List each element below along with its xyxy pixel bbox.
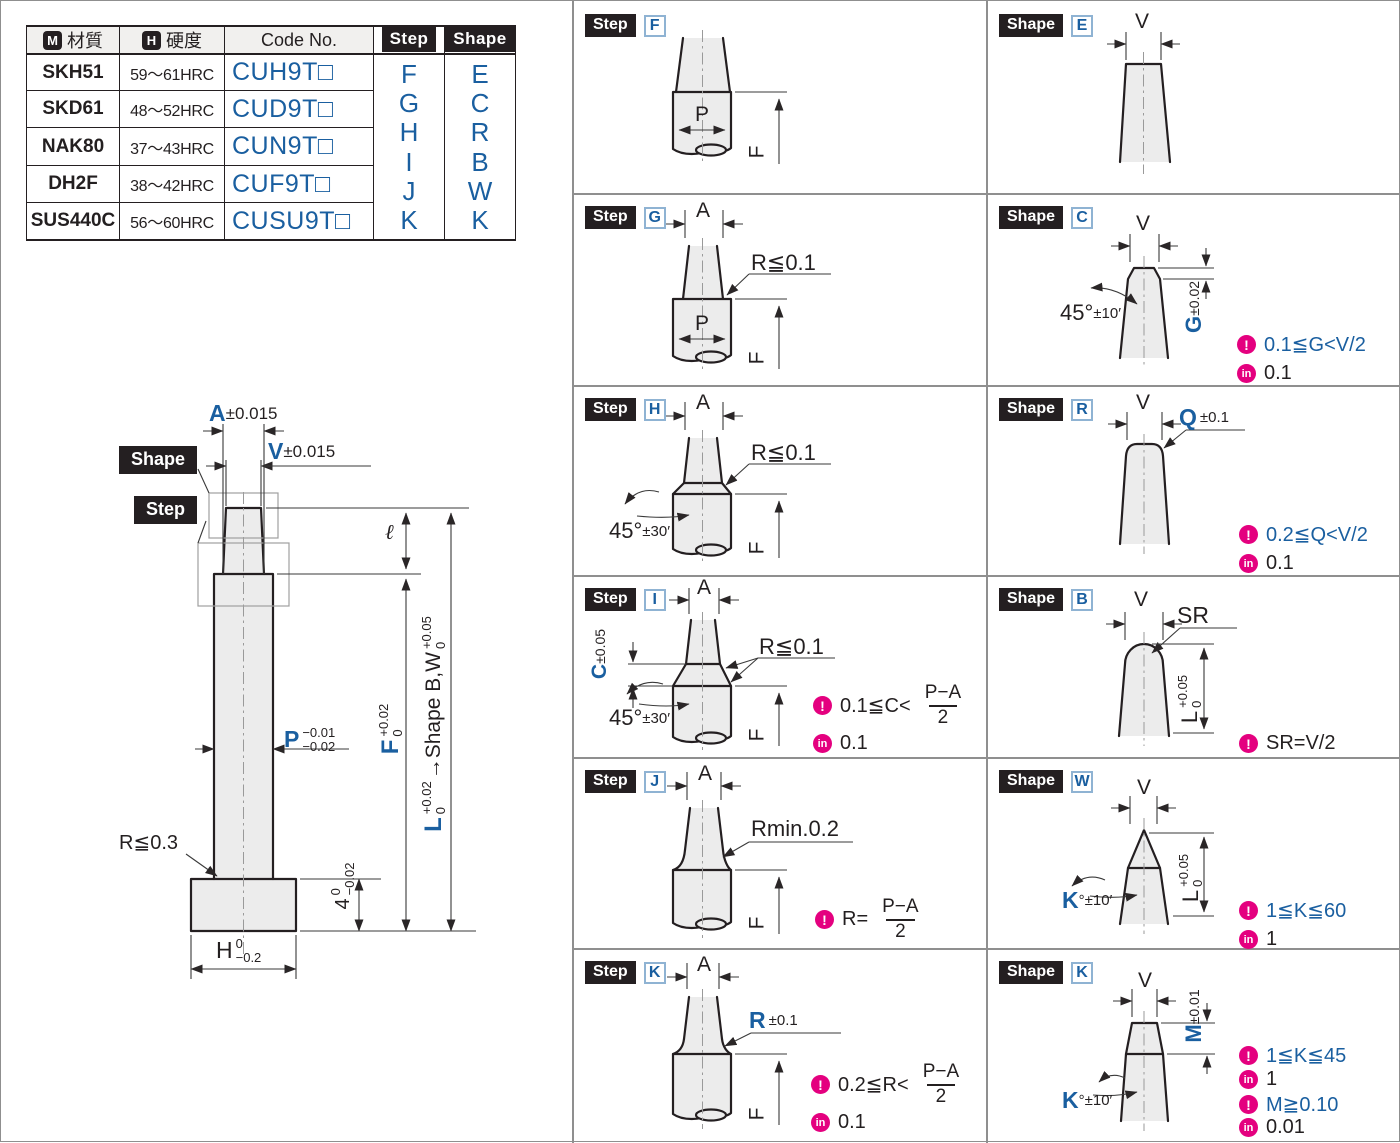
step-i-tag: Step I <box>585 588 666 611</box>
h-tol-top: 0 <box>236 937 262 951</box>
frac-num: P−A <box>923 1061 959 1084</box>
dim-q-letter: Q <box>1179 404 1197 431</box>
step-tag: Step <box>585 770 636 793</box>
dim-k-tolerance: °±10′ <box>1079 892 1113 909</box>
spec-table: M 材質 H 硬度 Code No. Step Shape SKH51 59〜6… <box>26 25 516 241</box>
note-value: 1 <box>1266 928 1277 951</box>
step-letter-box: K <box>644 962 666 984</box>
table-row-material: NAK80 <box>27 128 119 165</box>
dim-f: F <box>745 542 769 555</box>
r-max-label: R≦0.3 <box>119 830 178 855</box>
panel-step-j: Step J A Rmin.0.2 F ! R= P−A2 <box>573 758 986 948</box>
step-j-tag: Step J <box>585 770 666 793</box>
increment-icon: in <box>1239 1118 1258 1137</box>
header-step: Step <box>374 25 444 53</box>
shape-letter-box: B <box>1071 589 1093 611</box>
shape-k-tag: Shape K <box>999 961 1093 984</box>
angle-tolerance: ±30′ <box>642 710 670 727</box>
panel-shape-r: Shape R V Q ±0.1 ! 0.2≦Q<V/2 in 0.1 <box>987 386 1400 575</box>
increment-icon: in <box>1239 930 1258 949</box>
dim-c-letter: C <box>588 664 612 679</box>
dim-a: A <box>696 391 710 415</box>
step-callout-badge: Step <box>134 496 197 524</box>
step-letter: J <box>403 178 416 204</box>
hardness-icon: H <box>142 31 161 50</box>
shape-letter-box: C <box>1071 207 1093 229</box>
f-tol-top: +0.02 <box>377 704 391 737</box>
bw-tol-top: +0.05 <box>420 616 434 649</box>
shape-tag: Shape <box>999 206 1063 229</box>
dim-v: V <box>1136 212 1150 236</box>
dim-f-letter: F <box>377 740 405 755</box>
dim-k-label: K °±10′ <box>1062 1087 1112 1114</box>
step-letter-box: J <box>644 771 666 793</box>
dim-l-letter: L <box>420 817 448 832</box>
shape-letter-box: K <box>1071 962 1093 984</box>
dim-f: F <box>745 146 769 159</box>
step-letter-column: F G H I J K <box>374 61 444 233</box>
caution-icon: ! <box>811 1075 830 1094</box>
note-text: 0.1≦C< <box>840 693 911 718</box>
table-row-hardness: 37〜43HRC <box>120 128 224 165</box>
dim-v: V <box>1134 588 1148 612</box>
shape-w-tag: Shape W <box>999 770 1093 793</box>
note-caution: ! 0.2≦Q<V/2 <box>1239 522 1368 547</box>
dim-v: V <box>1136 391 1150 415</box>
caution-icon: ! <box>813 696 832 715</box>
dim-a-label: A ±0.015 <box>209 400 278 427</box>
note-text: SR=V/2 <box>1266 732 1335 755</box>
l-tol-bot: 0 <box>1190 675 1204 708</box>
shape-tag: Shape <box>999 770 1063 793</box>
step-g-tag: Step G <box>585 206 666 229</box>
dim-a: A <box>696 199 710 223</box>
shape-letter: B <box>471 149 488 175</box>
table-row-code: CUF9T□ <box>225 166 380 202</box>
step-letter: K <box>400 207 417 233</box>
frac-den: 2 <box>929 705 958 730</box>
shape-letter: C <box>471 90 490 116</box>
flange-t-value: 4 <box>332 898 355 909</box>
step-f-tag: Step F <box>585 14 666 37</box>
dim-v-tolerance: ±0.015 <box>283 442 335 462</box>
header-hardness-label: 硬度 <box>166 27 202 53</box>
flange-thickness-label: 4 0−0.02 <box>332 859 354 913</box>
table-row-hardness: 59〜61HRC <box>120 55 224 90</box>
dim-v: V <box>1138 969 1152 993</box>
dim-h-label: H 0−0.2 <box>216 937 261 964</box>
dim-f: F <box>745 1108 769 1121</box>
dim-c-label: C ±0.05 <box>589 617 611 691</box>
dim-a: A <box>697 953 711 977</box>
caution-icon: ! <box>1239 1046 1258 1065</box>
angle-value: 45° <box>1060 300 1093 326</box>
l-tol-top: +0.05 <box>1177 854 1191 887</box>
dim-l-letter: L <box>1177 711 1203 723</box>
note-caution: ! M≧0.10 <box>1239 1092 1338 1117</box>
table-row-hardness: 38〜42HRC <box>120 166 224 202</box>
increment-icon: in <box>1239 554 1258 573</box>
l-suffix: →Shape B,W <box>422 652 446 779</box>
step-k-tag: Step K <box>585 961 666 984</box>
table-row-material: SKD61 <box>27 91 119 127</box>
panel-step-k: Step K A R ±0.1 F ! 0.2≦R< P−A2 in 0.1 <box>573 949 986 1142</box>
note-value: 0.1 <box>838 1111 866 1134</box>
table-row-code: CUN9T□ <box>225 128 380 165</box>
panel-step-f: Step F P F <box>573 2 986 193</box>
note-increment: in 1 <box>1239 1068 1277 1091</box>
panel-shape-b: Shape B V SR L +0.050 ! SR=V/2 <box>987 576 1400 757</box>
angle-callout: 45° ±30′ <box>609 518 670 544</box>
step-letter-box: H <box>644 399 666 421</box>
sr-callout: SR <box>1177 602 1209 629</box>
dim-ell-label: ℓ <box>385 520 394 545</box>
note-text: R= <box>842 908 868 931</box>
dim-m-letter: M <box>1181 1024 1207 1042</box>
l-tol-top: +0.02 <box>420 781 434 814</box>
r-callout: R≦0.1 <box>751 440 816 466</box>
note-text: 0.1≦G<V/2 <box>1264 332 1366 357</box>
step-h-tag: Step H <box>585 398 666 421</box>
step-letter-box: I <box>644 589 666 611</box>
dim-v: V <box>1135 10 1149 34</box>
r-callout: Rmin.0.2 <box>751 816 839 842</box>
shape-letter-box: E <box>1071 15 1093 37</box>
dim-k-letter: K <box>1062 1087 1079 1114</box>
shape-tag: Shape <box>999 398 1063 421</box>
frac-num: P−A <box>925 682 961 705</box>
shape-letter-column: E C R B W K <box>445 61 515 233</box>
header-code-no: Code No. <box>225 27 373 53</box>
note-increment: in 1 <box>1239 928 1277 951</box>
dim-g-letter: G <box>1181 316 1207 333</box>
table-row-hardness: 56〜60HRC <box>120 203 224 239</box>
dim-c-tolerance: ±0.05 <box>592 629 608 664</box>
dim-l-letter: L <box>1178 890 1204 902</box>
shape-callout-badge: Shape <box>119 446 197 474</box>
caution-icon: ! <box>1239 525 1258 544</box>
note-value: 0.1 <box>1266 552 1294 575</box>
r-callout: R≦0.1 <box>751 250 816 276</box>
dim-l-label: L +0.050 <box>1178 845 1204 911</box>
increment-icon: in <box>1237 364 1256 383</box>
step-tag: Step <box>585 961 636 984</box>
note-increment: in 0.1 <box>811 1111 866 1134</box>
shape-e-tag: Shape E <box>999 14 1093 37</box>
dim-g-tolerance: ±0.02 <box>1186 281 1202 316</box>
note-fraction: P−A2 <box>923 1061 959 1109</box>
flange-tol-top: 0 <box>329 862 343 895</box>
pin-drawing: A ±0.015 V ±0.015 Shape Step ℓ F +0.020 … <box>91 394 491 1006</box>
shape-letter-box: W <box>1071 771 1093 793</box>
caution-icon: ! <box>1239 1095 1258 1114</box>
page: M 材質 H 硬度 Code No. Step Shape SKH51 59〜6… <box>0 0 1400 1142</box>
angle-value: 45° <box>609 705 642 731</box>
panel-shape-k: Shape K V M ±0.01 K °±10′ ! 1≦K≦45 in 1 … <box>987 949 1400 1142</box>
angle-value: 45° <box>609 518 642 544</box>
dim-m-label: M ±0.01 <box>1182 978 1206 1054</box>
dim-v-label: V ±0.015 <box>268 438 335 465</box>
header-material: M 材質 <box>27 27 119 53</box>
table-row-code: CUD9T□ <box>225 91 380 127</box>
increment-icon: in <box>813 734 832 753</box>
note-text: 1≦K≦60 <box>1266 898 1346 923</box>
dim-k-letter: K <box>1062 887 1079 914</box>
shape-r-tag: Shape R <box>999 398 1093 421</box>
note-caution: ! 0.2≦R< P−A2 <box>811 1061 959 1109</box>
dim-k-label: K °±10′ <box>1062 887 1112 914</box>
angle-callout: 45° ±10′ <box>1060 300 1121 326</box>
r-callout: R≦0.1 <box>759 634 824 660</box>
angle-tolerance: ±10′ <box>1093 305 1121 322</box>
shape-letter: K <box>471 207 488 233</box>
note-increment: in 0.1 <box>1239 552 1294 575</box>
step-callout: Step <box>134 496 197 524</box>
step-tag: Step <box>585 14 636 37</box>
note-increment: in 0.1 <box>813 732 868 755</box>
note-caution: ! R= P−A2 <box>815 896 919 944</box>
caution-icon: ! <box>1239 901 1258 920</box>
shape-callout: Shape <box>119 446 197 474</box>
angle-tolerance: ±30′ <box>642 523 670 540</box>
step-letter: G <box>399 90 419 116</box>
step-letter: I <box>405 149 412 175</box>
l-tol-bot: 0 <box>434 781 448 814</box>
shape-b-tag: Shape B <box>999 588 1093 611</box>
dim-l-label: L +0.020 →Shape B,W +0.050 <box>420 599 448 849</box>
shape-tag: Shape <box>999 14 1063 37</box>
note-value: 0.1 <box>1264 362 1292 385</box>
table-row-hardness: 48〜52HRC <box>120 91 224 127</box>
table-row-material: SKH51 <box>27 55 119 90</box>
l-tol-bot: 0 <box>1191 854 1205 887</box>
table-row-code: CUSU9T□ <box>225 203 380 239</box>
dim-p: P <box>695 103 709 127</box>
r-callout: R ±0.1 <box>749 1007 798 1034</box>
increment-icon: in <box>811 1113 830 1132</box>
shape-tag: Shape <box>999 961 1063 984</box>
shape-badge: Shape <box>445 26 515 52</box>
h-tol-bot: −0.2 <box>236 951 262 965</box>
step-letter: F <box>401 61 417 87</box>
table-row-material: DH2F <box>27 166 119 202</box>
flange-tol-bot: −0.02 <box>343 862 357 895</box>
step-tag: Step <box>585 206 636 229</box>
dim-p-letter: P <box>284 726 299 753</box>
p-tol-bot: −0.02 <box>302 740 335 754</box>
frac-den: 2 <box>886 919 915 944</box>
frac-den: 2 <box>927 1084 956 1109</box>
panel-step-g: Step G A R≦0.1 P F <box>573 194 986 385</box>
note-increment: in 0.1 <box>1237 362 1292 385</box>
shape-letter: E <box>471 61 488 87</box>
dim-l-label: L +0.050 <box>1177 666 1203 732</box>
step-letter-box: G <box>644 207 666 229</box>
note-caution: ! 0.1≦C< P−A2 <box>813 682 961 730</box>
note-caution: ! SR=V/2 <box>1239 732 1335 755</box>
increment-icon: in <box>1239 1070 1258 1089</box>
bw-tol-bot: 0 <box>434 616 448 649</box>
dim-k-tolerance: °±10′ <box>1079 1092 1113 1109</box>
note-value: 0.1 <box>840 732 868 755</box>
table-row-material: SUS440C <box>27 203 119 239</box>
shape-letter-box: R <box>1071 399 1093 421</box>
note-caution: ! 1≦K≦45 <box>1239 1043 1346 1068</box>
dim-a-letter: A <box>209 400 226 427</box>
dim-a: A <box>697 576 711 600</box>
shape-tag: Shape <box>999 588 1063 611</box>
note-value: 0.01 <box>1266 1116 1305 1139</box>
r-tolerance: ±0.1 <box>769 1012 798 1029</box>
dim-f: F <box>745 729 769 742</box>
note-text: 1≦K≦45 <box>1266 1043 1346 1068</box>
header-material-label: 材質 <box>67 27 103 53</box>
caution-icon: ! <box>815 910 834 929</box>
dim-p: P <box>695 312 709 336</box>
dim-p-label: P −0.01−0.02 <box>284 726 335 753</box>
panel-shape-e: Shape E V <box>987 2 1400 193</box>
header-shape: Shape <box>445 25 515 53</box>
note-text: M≧0.10 <box>1266 1092 1338 1117</box>
material-icon: M <box>43 31 62 50</box>
dim-a-tolerance: ±0.015 <box>226 404 278 424</box>
dim-q-tolerance: ±0.1 <box>1200 409 1229 426</box>
p-tol-top: −0.01 <box>302 726 335 740</box>
note-text: 0.2≦R< <box>838 1072 909 1097</box>
table-row-code: CUH9T□ <box>225 55 380 90</box>
dim-v: V <box>1137 776 1151 800</box>
note-text: 0.2≦Q<V/2 <box>1266 522 1368 547</box>
panel-shape-w: Shape W V K °±10′ L +0.050 ! 1≦K≦60 in 1 <box>987 758 1400 948</box>
caution-icon: ! <box>1237 335 1256 354</box>
panel-shape-c: Shape C V 45° ±10′ G ±0.02 ! 0.1≦G<V/2 i… <box>987 194 1400 385</box>
frac-num: P−A <box>882 896 918 919</box>
header-hardness: H 硬度 <box>120 27 224 53</box>
l-tol-top: +0.05 <box>1176 675 1190 708</box>
step-tag: Step <box>585 398 636 421</box>
note-fraction: P−A2 <box>882 896 918 944</box>
dim-a: A <box>698 762 712 786</box>
dim-m-tolerance: ±0.01 <box>1186 989 1202 1024</box>
dim-h-letter: H <box>216 937 233 964</box>
shape-c-tag: Shape C <box>999 206 1093 229</box>
step-tag: Step <box>585 588 636 611</box>
step-letter-box: F <box>644 15 666 37</box>
note-increment: in 0.01 <box>1239 1116 1305 1139</box>
dim-f: F <box>745 352 769 365</box>
dim-f-label: F +0.020 <box>378 694 404 764</box>
dim-g-label: G ±0.02 <box>1182 269 1206 345</box>
note-caution: ! 1≦K≦60 <box>1239 898 1346 923</box>
step-badge: Step <box>382 26 437 52</box>
r-letter: R <box>749 1007 766 1034</box>
note-value: 1 <box>1266 1068 1277 1091</box>
shape-letter: W <box>468 178 493 204</box>
panel-step-h: Step H A R≦0.1 45° ±30′ F <box>573 386 986 575</box>
note-fraction: P−A2 <box>925 682 961 730</box>
shape-letter: R <box>471 119 490 145</box>
step-letter: H <box>400 119 419 145</box>
dim-q-label: Q ±0.1 <box>1179 404 1229 431</box>
panel-step-i: Step I A C ±0.05 R≦0.1 45° ±30′ F ! 0.1≦… <box>573 576 986 757</box>
caution-icon: ! <box>1239 734 1258 753</box>
dim-v-letter: V <box>268 438 283 465</box>
angle-callout: 45° ±30′ <box>609 705 670 731</box>
f-tol-bot: 0 <box>391 704 405 737</box>
dim-f: F <box>745 917 769 930</box>
note-caution: ! 0.1≦G<V/2 <box>1237 332 1366 357</box>
